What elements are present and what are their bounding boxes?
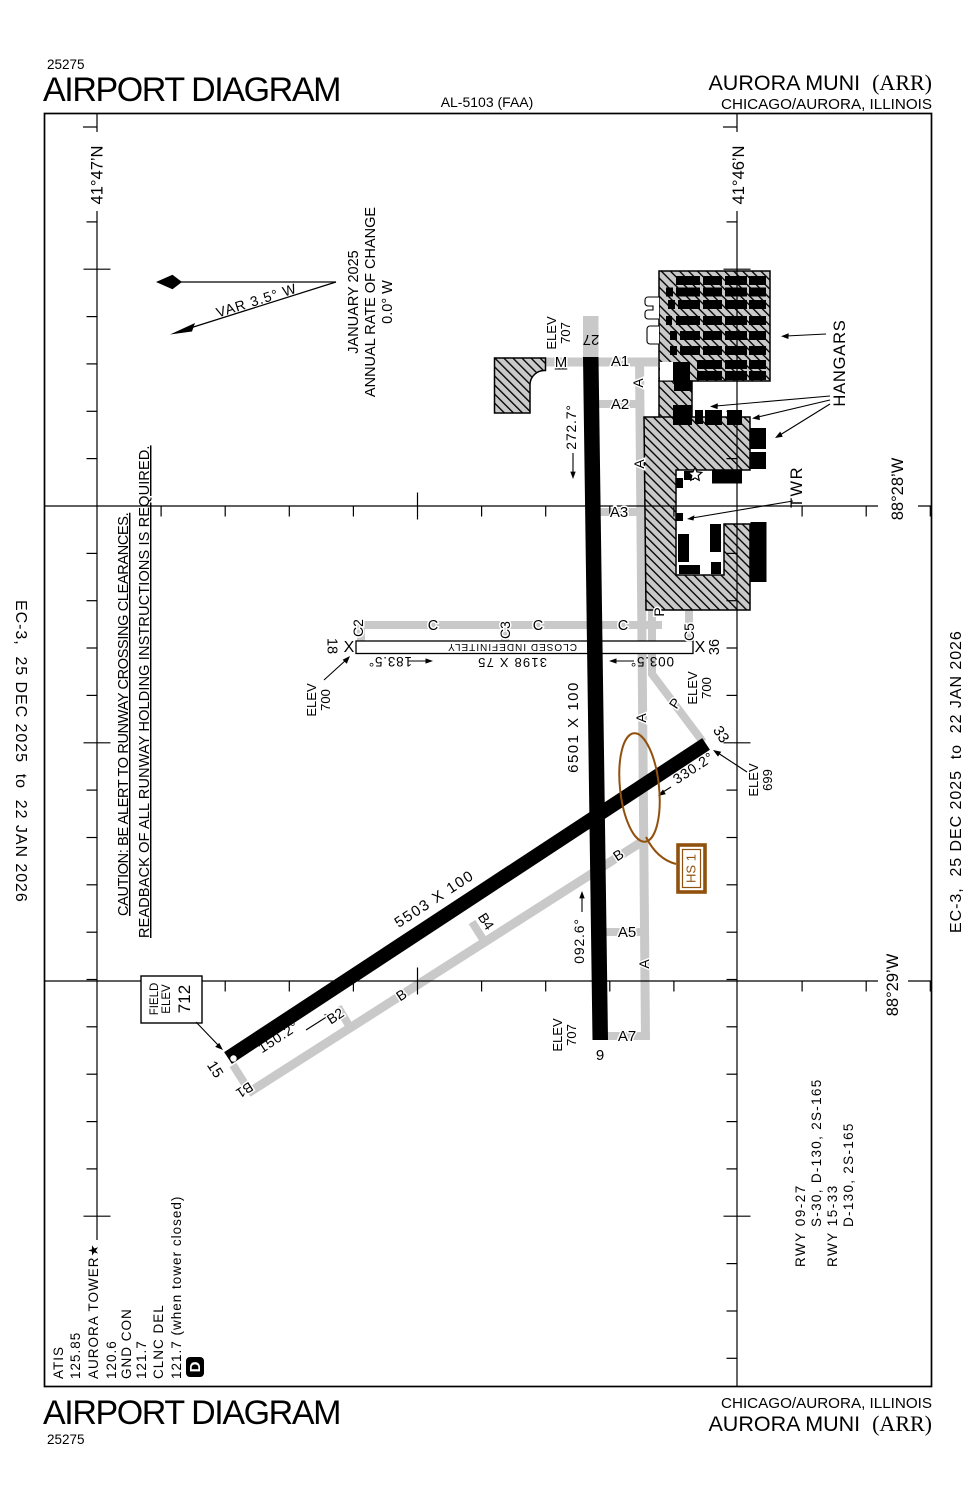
svg-text:A: A <box>630 378 646 388</box>
svg-text:HANGARS: HANGARS <box>831 319 849 406</box>
svg-text:CAUTION: BE ALERT TO RUNWAY CR: CAUTION: BE ALERT TO RUNWAY CROSSING CLE… <box>116 513 132 916</box>
svg-text:125.85: 125.85 <box>68 1332 83 1379</box>
svg-text:S-30, D-130, 2S-165: S-30, D-130, 2S-165 <box>809 1078 824 1227</box>
svg-text:ELEV: ELEV <box>746 763 761 797</box>
svg-text:RWY 09-27: RWY 09-27 <box>793 1184 808 1267</box>
svg-text:HS 1: HS 1 <box>684 854 699 883</box>
svg-text:RWY 15-33: RWY 15-33 <box>825 1184 840 1267</box>
svg-text:AURORA MUNI (ARR): AURORA MUNI (ARR) <box>708 70 932 95</box>
svg-text:FIELD: FIELD <box>149 983 161 1016</box>
svg-text:27: 27 <box>583 331 600 348</box>
svg-text:18: 18 <box>324 638 340 654</box>
svg-text:120.6: 120.6 <box>104 1340 119 1379</box>
svg-text:AL-5103 (FAA): AL-5103 (FAA) <box>441 94 534 110</box>
svg-text:C2: C2 <box>350 619 366 637</box>
svg-text:CHICAGO/AURORA, ILLINOIS: CHICAGO/AURORA, ILLINOIS <box>721 1395 932 1412</box>
svg-text:ANNUAL RATE OF CHANGE: ANNUAL RATE OF CHANGE <box>363 207 379 397</box>
svg-text:CHICAGO/AURORA, ILLINOIS: CHICAGO/AURORA, ILLINOIS <box>721 96 932 113</box>
svg-text:121.7 (when tower closed): 121.7 (when tower closed) <box>169 1196 184 1379</box>
svg-text:41°47’N: 41°47’N <box>89 146 107 205</box>
svg-text:CLNC DEL: CLNC DEL <box>151 1304 166 1379</box>
svg-text:A1: A1 <box>611 353 629 370</box>
svg-text:707: 707 <box>564 1024 579 1046</box>
svg-text:A2: A2 <box>611 396 629 413</box>
svg-text:C3: C3 <box>497 621 513 639</box>
svg-text:707: 707 <box>558 322 573 344</box>
svg-text:092.6°: 092.6° <box>571 918 587 963</box>
svg-text:272.7°: 272.7° <box>563 404 579 449</box>
svg-text:C: C <box>533 618 543 634</box>
svg-text:41°46’N: 41°46’N <box>730 146 748 205</box>
svg-text:A5: A5 <box>618 924 636 941</box>
svg-text:CLOSED INDEFINITELY: CLOSED INDEFINITELY <box>447 641 577 652</box>
svg-text:ELEV: ELEV <box>550 1018 565 1052</box>
svg-text:EC-3, 25 DEC 2025 to 22 JAN: EC-3, 25 DEC 2025 to 22 JAN 2026 <box>12 600 29 903</box>
svg-text:A: A <box>631 459 647 469</box>
svg-text:AIRPORT DIAGRAM: AIRPORT DIAGRAM <box>43 71 340 109</box>
svg-text:25275: 25275 <box>47 1432 85 1447</box>
svg-text:ELEV: ELEV <box>161 984 173 1014</box>
svg-text:ELEV: ELEV <box>544 316 559 350</box>
svg-text:GND CON: GND CON <box>119 1308 134 1379</box>
svg-text:A: A <box>633 713 649 723</box>
svg-text:699: 699 <box>760 769 775 791</box>
svg-text:6501 X 100: 6501 X 100 <box>565 681 582 773</box>
svg-text:712: 712 <box>175 985 194 1013</box>
svg-text:P: P <box>651 607 667 616</box>
svg-text:EC-3, 25 DEC 2025 to 22 JAN: EC-3, 25 DEC 2025 to 22 JAN 2026 <box>948 630 965 933</box>
svg-text:700: 700 <box>699 677 714 699</box>
svg-text:3198 X 75: 3198 X 75 <box>477 655 547 670</box>
svg-text:A: A <box>636 959 652 969</box>
svg-text:M: M <box>555 354 568 371</box>
svg-text:88°29’W: 88°29’W <box>884 953 902 1016</box>
svg-text:003.5°: 003.5° <box>630 654 674 669</box>
svg-text:ELEV: ELEV <box>685 671 700 705</box>
svg-text:ATIS: ATIS <box>51 1346 66 1379</box>
svg-text:C: C <box>618 618 628 634</box>
svg-text:D-130, 2S-165: D-130, 2S-165 <box>841 1122 856 1227</box>
svg-text:READBACK OF ALL RUNWAY HOLDING: READBACK OF ALL RUNWAY HOLDING INSTRUCTI… <box>137 445 153 938</box>
svg-text:AURORA TOWER★: AURORA TOWER★ <box>86 1243 101 1379</box>
svg-text:121.7: 121.7 <box>134 1340 149 1379</box>
svg-text:25275: 25275 <box>47 57 85 72</box>
svg-text:36: 36 <box>707 639 723 655</box>
svg-text:A3: A3 <box>610 504 628 521</box>
svg-text:JANUARY 2025: JANUARY 2025 <box>346 250 362 353</box>
svg-text:AURORA MUNI (ARR): AURORA MUNI (ARR) <box>708 1411 932 1436</box>
svg-text:C: C <box>428 618 438 634</box>
svg-text:9: 9 <box>596 1047 604 1064</box>
svg-text:AIRPORT DIAGRAM: AIRPORT DIAGRAM <box>43 1394 340 1432</box>
svg-text:D: D <box>187 1361 204 1372</box>
svg-text:A7: A7 <box>618 1028 636 1045</box>
svg-text:700: 700 <box>318 689 333 711</box>
svg-text:X: X <box>344 639 355 656</box>
svg-text:88°28’W: 88°28’W <box>889 457 907 520</box>
svg-text:ELEV: ELEV <box>304 683 319 717</box>
svg-text:C5: C5 <box>681 623 697 641</box>
svg-text:0.0° W: 0.0° W <box>380 280 396 324</box>
svg-text:183.5°: 183.5° <box>368 654 412 669</box>
